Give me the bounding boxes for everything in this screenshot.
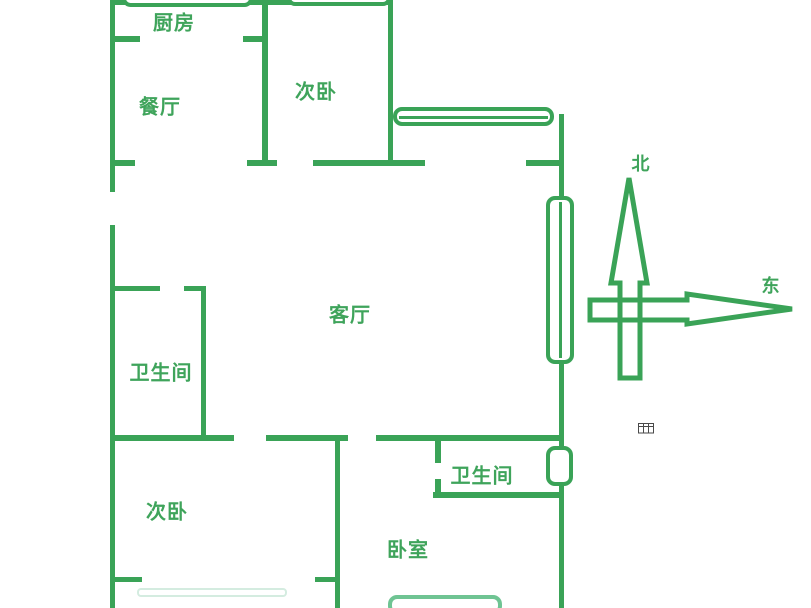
room-label-bathroom-left: 卫生间	[130, 357, 193, 386]
wall-bathbottom-bottom	[433, 492, 564, 498]
wall-bathleft-right	[201, 287, 206, 439]
room-label-kitchen: 厨房	[153, 7, 195, 36]
north-arrow-icon	[611, 178, 647, 378]
room-label-bedroom-main: 卧室	[387, 534, 429, 563]
table-grid-icon	[638, 423, 655, 434]
floor-plan: 厨房 餐厅 次卧 客厅 卫生间 次卧 卫生间 卧室 北 东	[0, 0, 811, 608]
room-label-living: 客厅	[329, 299, 371, 328]
wall-h437-c	[376, 435, 564, 441]
room-label-bedroom-left: 次卧	[146, 496, 188, 525]
living-right-window-midline	[559, 202, 562, 358]
wall-stub-bottommid	[315, 577, 340, 582]
wall-stub-bottomleft	[110, 577, 142, 582]
wall-left-lower	[110, 225, 115, 608]
wall-mid-a	[110, 160, 135, 166]
bedroomtop-top-window	[287, 0, 391, 6]
bedroom-bottom-window	[388, 595, 502, 608]
wall-right-bottom	[559, 484, 564, 608]
wall-bedroomtop-right	[388, 0, 393, 165]
wall-bathbottom-left-a	[435, 440, 441, 463]
bay-window	[393, 107, 554, 126]
room-label-dining: 餐厅	[139, 91, 181, 120]
wall-kitchen-bottom-a	[110, 36, 140, 42]
compass-arrows-icon	[570, 150, 811, 385]
wall-h437-a	[110, 435, 234, 441]
wall-kitchen-right	[262, 0, 268, 165]
room-label-bedroom-top: 次卧	[295, 76, 337, 105]
bathroom-small-window	[546, 446, 573, 486]
bedroomleft-bottom-window	[137, 588, 287, 597]
wall-bottom-mid	[335, 437, 340, 608]
bay-window-midline	[399, 116, 548, 119]
wall-mid-b	[247, 160, 277, 166]
room-label-bathroom-bottom: 卫生间	[451, 460, 514, 489]
wall-bathleft-top-a	[112, 286, 160, 291]
wall-kitchen-bottom-b	[243, 36, 268, 42]
wall-right-top	[559, 114, 564, 198]
wall-mid-c	[313, 160, 425, 166]
